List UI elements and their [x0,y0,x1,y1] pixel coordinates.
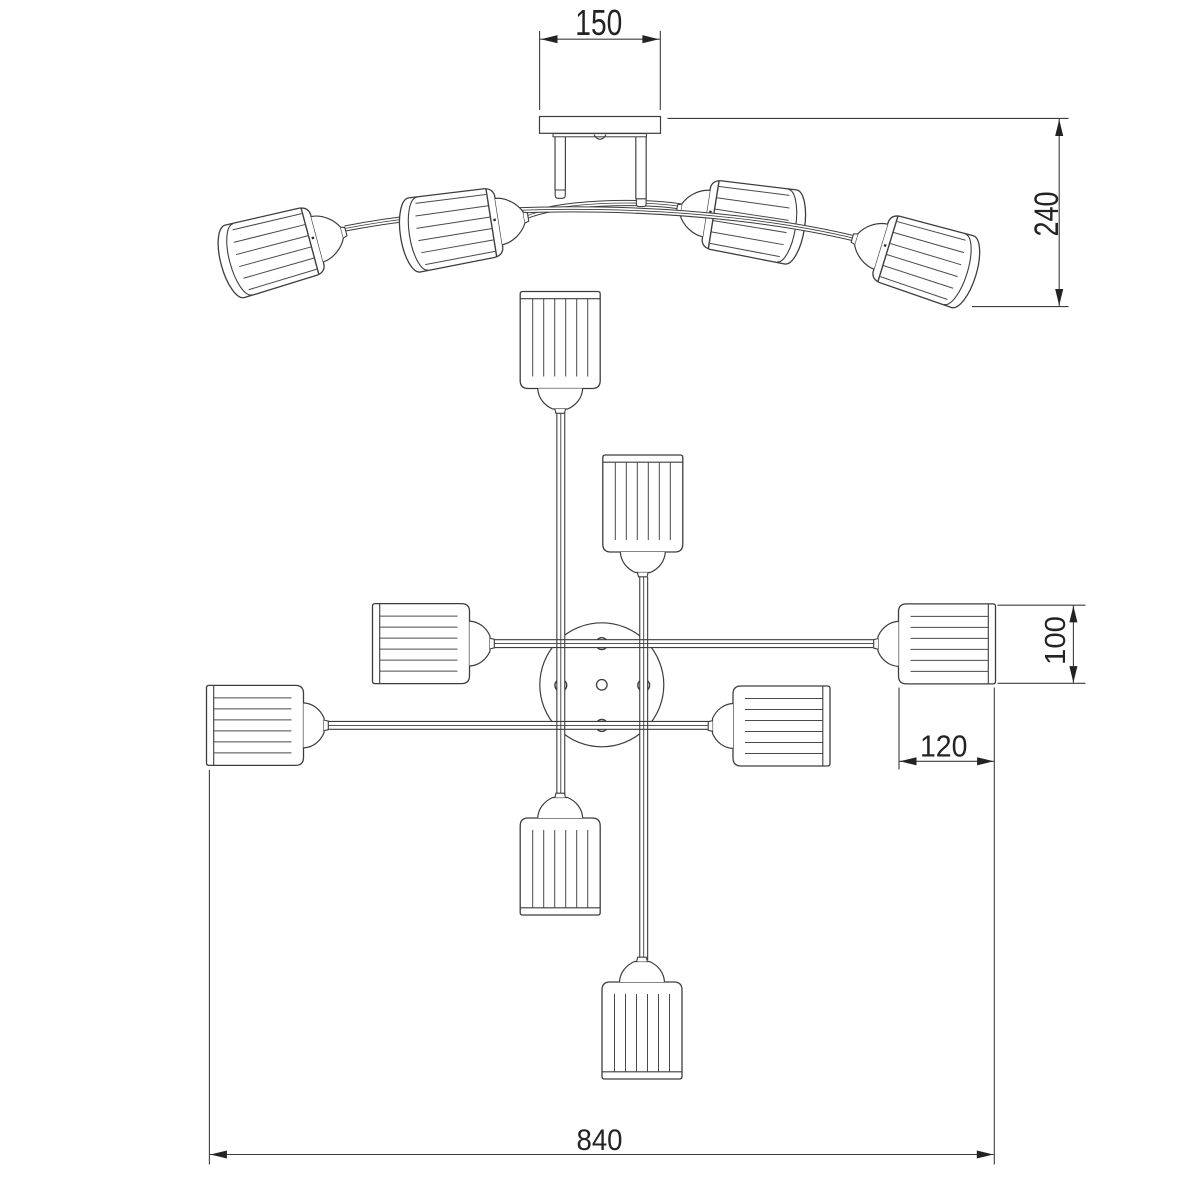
svg-text:100: 100 [1040,616,1072,665]
svg-text:150: 150 [575,2,622,43]
svg-text:240: 240 [1028,192,1066,237]
svg-text:840: 840 [577,1124,623,1157]
svg-text:120: 120 [920,729,968,764]
